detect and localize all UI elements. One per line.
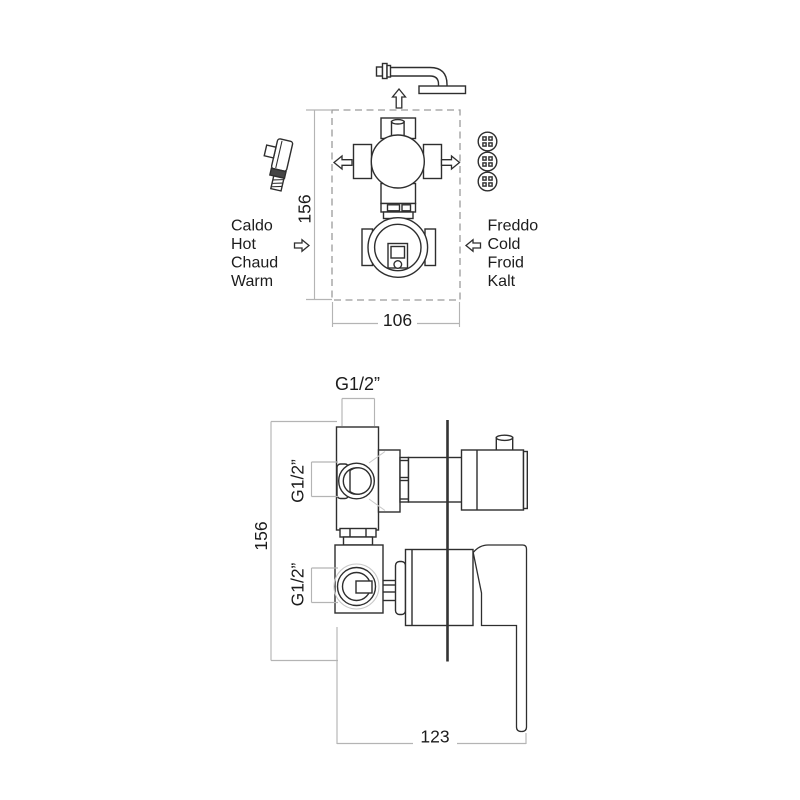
hand-shower-arrow-icon <box>334 156 352 169</box>
shower-outlet-arrow-icon <box>393 89 406 108</box>
hot-label-caldo: Caldo <box>231 218 273 235</box>
upper-port-opening <box>350 468 371 494</box>
cold-label-froid: Froid <box>488 255 524 272</box>
lower-port-slot <box>356 581 372 593</box>
hot-label-hot: Hot <box>231 236 256 253</box>
cold-label-freddo: Freddo <box>488 218 539 235</box>
thread-upper-label: G1/2” <box>288 459 308 503</box>
drawing-canvas: Caldo Hot Chaud Warm Freddo Cold Froid K… <box>0 0 800 800</box>
diverter-valve-side <box>334 529 473 626</box>
hot-inlet-arrow-icon <box>295 240 310 251</box>
shower-handle-side <box>473 545 526 732</box>
thread-lower-label: G1/2” <box>288 562 308 606</box>
side-view: G1/2” 156 <box>251 374 527 747</box>
cold-label-cold: Cold <box>488 236 521 253</box>
cold-label-kalt: Kalt <box>488 273 516 290</box>
hand-shower-icon <box>257 136 293 191</box>
body-jets-arrow-icon <box>442 156 460 169</box>
hot-inlet-labels: Caldo Hot Chaud Warm <box>231 218 309 291</box>
thread-top-label: G1/2” <box>335 374 380 394</box>
side-height-dim-label: 156 <box>251 521 271 550</box>
technical-drawing-page: Caldo Hot Chaud Warm Freddo Cold Froid K… <box>0 0 800 800</box>
front-height-dim-label: 156 <box>295 194 315 223</box>
cold-inlet-labels: Freddo Cold Froid Kalt <box>466 218 538 291</box>
cold-inlet-arrow-icon <box>466 240 481 251</box>
side-height-dimension <box>271 422 338 661</box>
body-jets-icon <box>478 132 497 191</box>
thermostatic-cartridge-side <box>337 427 463 530</box>
temperature-knob-side <box>462 435 528 510</box>
thread-upper-bracket <box>312 462 339 497</box>
front-view: Caldo Hot Chaud Warm Freddo Cold Froid K… <box>231 64 538 331</box>
hot-label-warm: Warm <box>231 273 273 290</box>
front-width-dim-label: 106 <box>383 310 412 330</box>
shower-arm-icon <box>377 64 466 94</box>
hot-label-chaud: Chaud <box>231 255 278 272</box>
side-depth-dim-label: 123 <box>420 727 449 747</box>
valve-body-front <box>354 118 442 277</box>
thread-top-bracket <box>342 399 375 427</box>
